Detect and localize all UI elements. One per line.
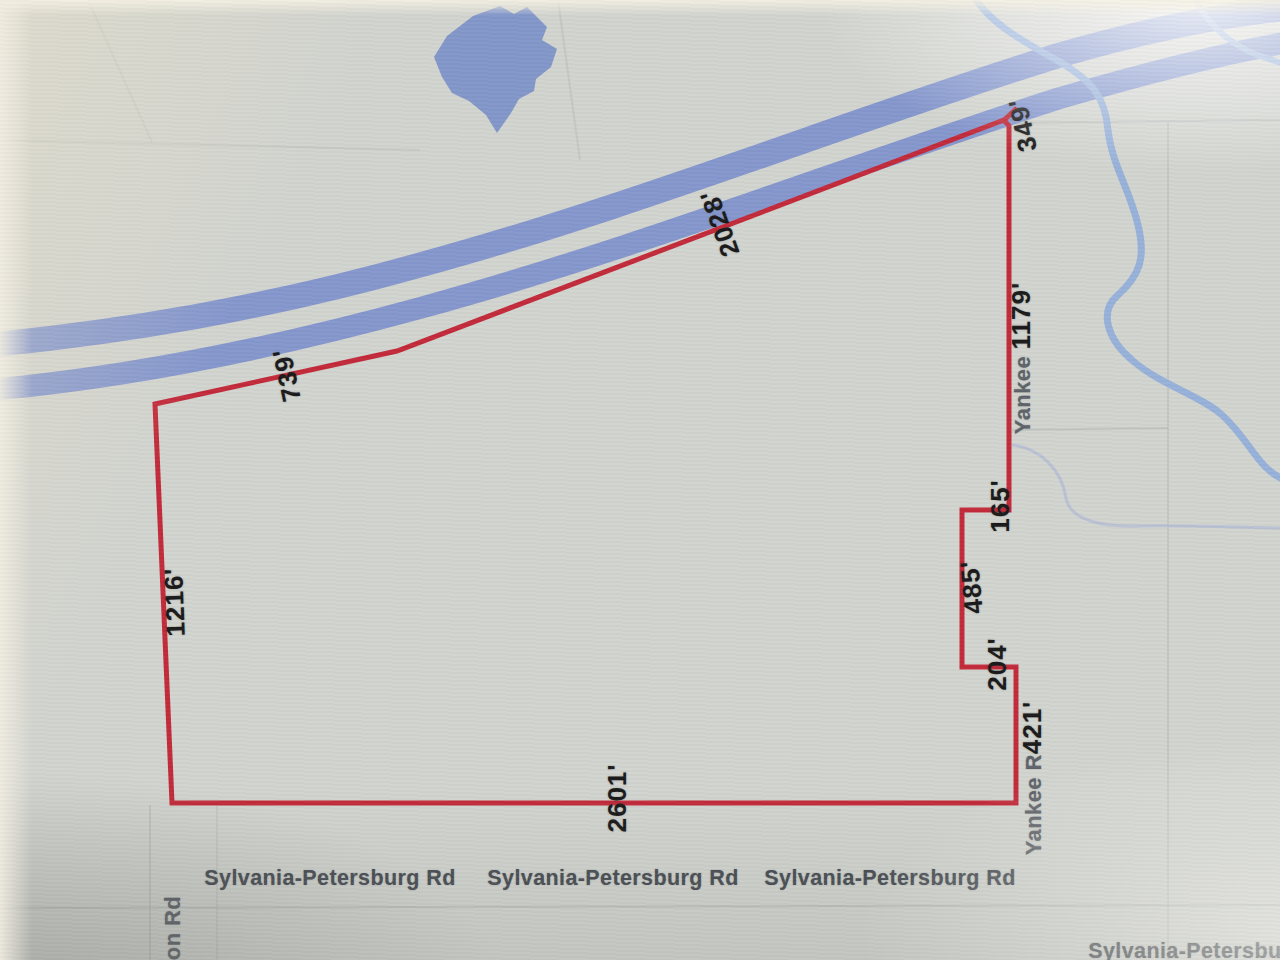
yankee-rd-label-south: Yankee R421' [1017,701,1048,856]
road-label-sylvania-petersburg-partial: Sylvania-Petersburg [1088,939,1280,960]
map-artwork-layer [0,0,1280,960]
dimension-label-485: 485' [954,559,990,615]
faint-line-topleft-diagonal [88,0,152,142]
faint-line-top-vertical [558,0,580,160]
faint-line-right-horizontal-upper [1010,120,1280,123]
faint-line-sylvania-road [0,905,1280,908]
pond [434,6,557,133]
road-label-on-rd-partial: on Rd [160,896,186,960]
dimension-label-204: 204' [982,637,1013,691]
dimension-label-421: 421' [1017,701,1047,755]
dimension-label-1216: 1216' [158,567,191,637]
river [0,8,1280,390]
yankee-rd-label-north: Yankee 1179' [1006,282,1037,434]
faint-parcel-lines [0,0,1280,960]
river-band-south [0,42,1280,390]
map-canvas[interactable]: 739' 2028' 349' 1216' 2601' 165' 485' 20… [0,0,1280,960]
road-label-sylvania-petersburg-2: Sylvania-Petersburg Rd [487,866,738,891]
yankee-rd-name-partial: Yankee R [1021,754,1046,855]
faint-drain-line [1012,445,1280,528]
dimension-label-2601: 2601' [602,763,633,832]
yankee-rd-name: Yankee [1010,349,1035,434]
road-label-sylvania-petersburg-3: Sylvania-Petersburg Rd [764,866,1015,891]
dimension-label-1179: 1179' [1006,282,1036,350]
road-label-sylvania-petersburg-1: Sylvania-Petersburg Rd [204,866,455,891]
river-band-north [0,8,1280,345]
dimension-label-165: 165' [985,479,1016,533]
faint-line-top-horizontal [0,140,420,150]
